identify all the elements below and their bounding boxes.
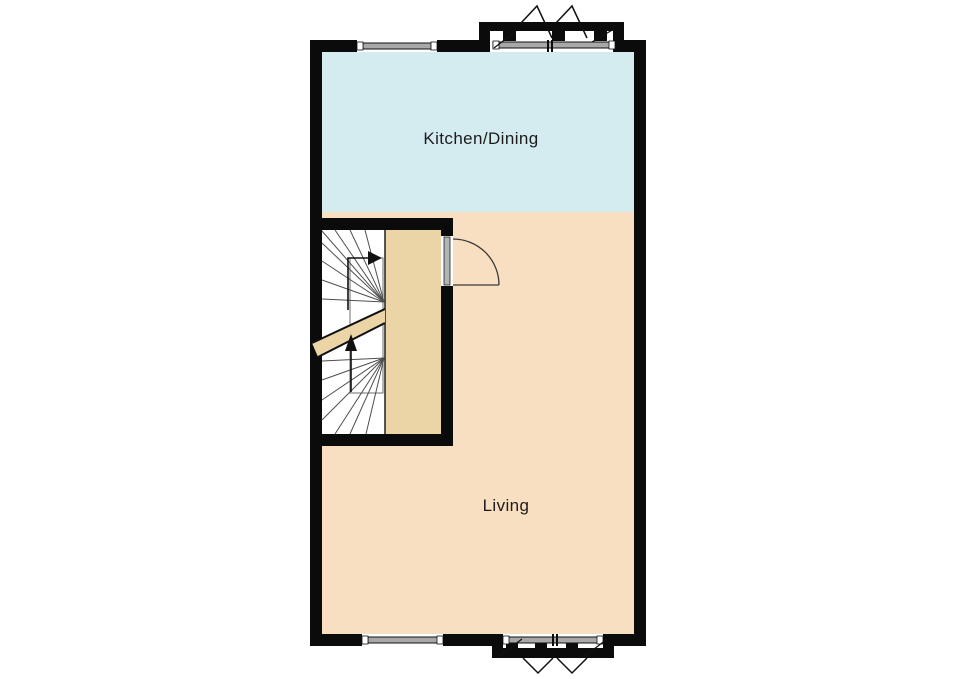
window-glazing [368, 637, 438, 643]
bay-mullion [552, 31, 565, 41]
window-cap [431, 42, 437, 50]
bay-center-post [551, 40, 553, 52]
floor-plan: Kitchen/Dining Living [0, 0, 960, 679]
open-casement-icon [557, 658, 587, 673]
top-bay-window [479, 6, 624, 52]
bay-center-post [547, 40, 549, 52]
bay-center-post [556, 634, 558, 646]
bay-center-post [552, 634, 554, 646]
window-cap [609, 41, 615, 49]
stair-wall-bottom [310, 434, 453, 446]
bay-frame-left [479, 22, 490, 52]
window-cap [437, 636, 443, 644]
bay-glazing [493, 42, 615, 48]
bottom-window [362, 634, 443, 646]
door-leaf [444, 237, 450, 285]
window-glazing [363, 43, 431, 49]
stair-wall-top [310, 218, 453, 230]
staircase [310, 218, 453, 446]
stair-landing [385, 230, 441, 434]
window-cap [503, 636, 509, 644]
window-cap [357, 42, 363, 50]
top-window [357, 40, 437, 52]
bay-frame-right [603, 634, 614, 658]
room-label-kitchen-dining: Kitchen/Dining [423, 129, 538, 148]
floor-plan-drawing: Kitchen/Dining Living [0, 0, 960, 679]
open-casement-icon [523, 658, 553, 673]
room-label-living: Living [483, 496, 530, 515]
bay-frame-top [479, 22, 624, 31]
wall-right [634, 40, 646, 646]
window-cap [362, 636, 368, 644]
bottom-bay-window [492, 634, 614, 673]
